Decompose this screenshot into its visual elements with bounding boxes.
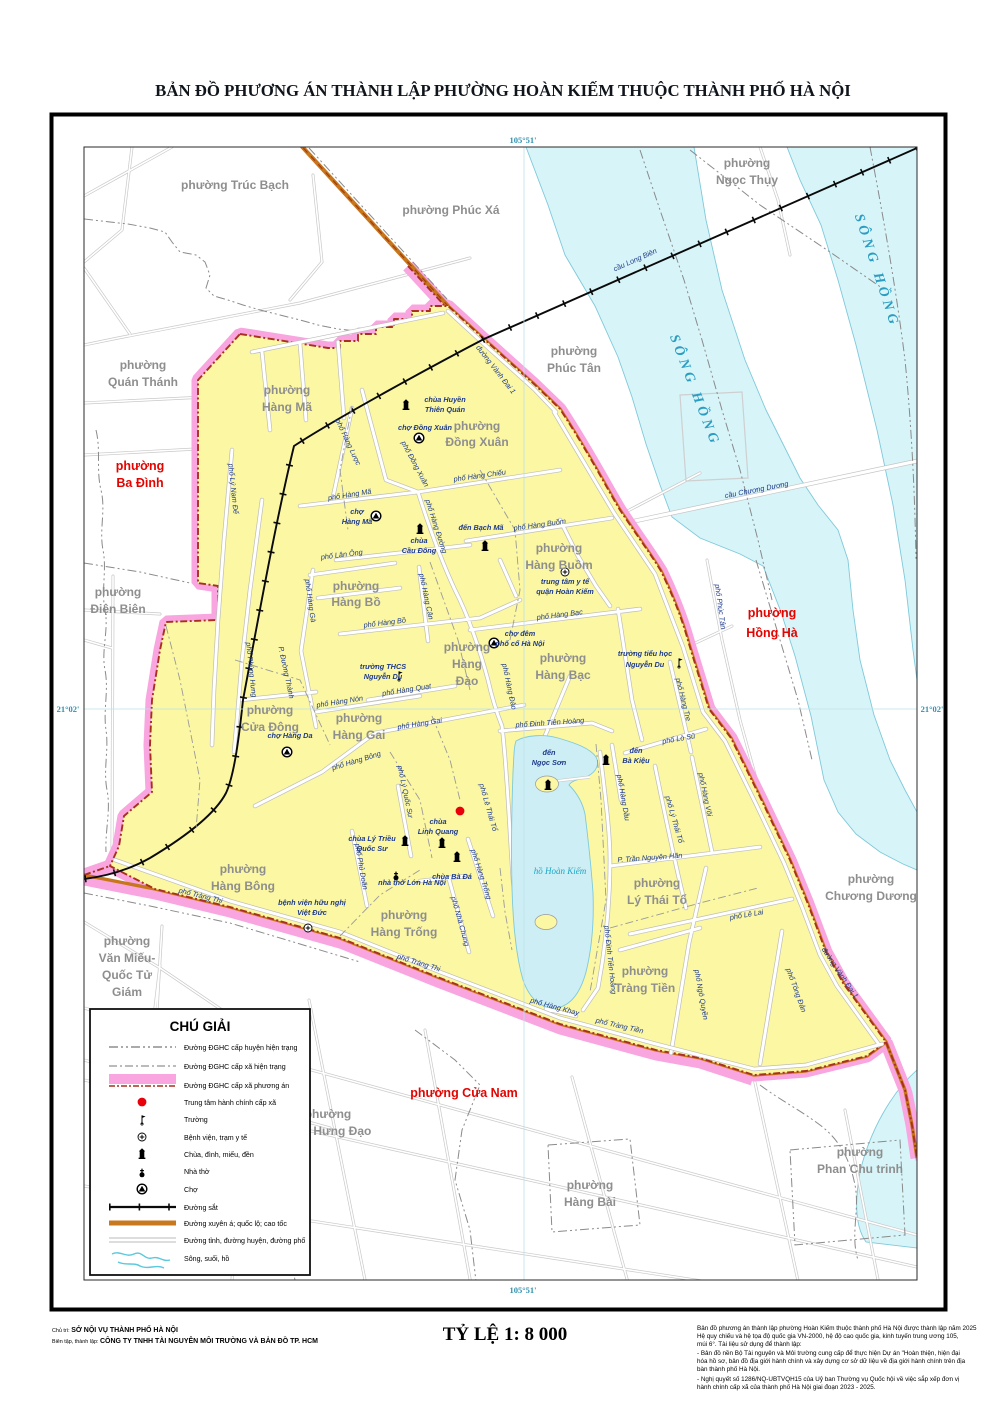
svg-text:Ba Đình: Ba Đình [116,476,163,490]
svg-text:trường THCS: trường THCS [360,662,406,671]
svg-text:chùa Lý Triều: chùa Lý Triều [348,834,396,843]
svg-text:phường: phường [551,344,598,358]
svg-text:phố cổ Hà Nội: phố cổ Hà Nội [494,639,545,648]
svg-text:phường: phường [622,964,669,978]
svg-text:phường: phường [536,541,583,555]
svg-text:đến Bạch Mã: đến Bạch Mã [458,523,503,532]
svg-text:Ngọc Sơn: Ngọc Sơn [532,758,567,767]
svg-text:Bản đồ phương án thành lập phư: Bản đồ phương án thành lập phường Hoàn K… [697,1323,977,1332]
svg-text:Hàng Bồ: Hàng Bồ [331,595,380,609]
svg-text:phường: phường [120,358,167,372]
svg-text:phường: phường [305,1107,352,1121]
svg-text:Hàng Buồm: Hàng Buồm [525,558,592,572]
svg-text:- Nghị quyết số 1286/NQ-UBTVQH: - Nghị quyết số 1286/NQ-UBTVQH15 của Uỷ … [697,1374,959,1383]
svg-text:105°51': 105°51' [509,135,536,145]
svg-text:hồ Hoàn Kiếm: hồ Hoàn Kiếm [534,866,587,876]
svg-text:Đồng Xuân: Đồng Xuân [445,435,508,449]
svg-text:Thiên Quán: Thiên Quán [425,405,466,414]
svg-text:Chùa, đình, miếu, đền: Chùa, đình, miếu, đền [184,1150,254,1159]
svg-text:Lý Thái Tổ: Lý Thái Tổ [627,893,687,907]
svg-text:Cầu Đông: Cầu Đông [402,546,437,555]
svg-text:hóa hồ sơ, bản đồ địa giới hàn: hóa hồ sơ, bản đồ địa giới hành chính và… [697,1356,966,1365]
svg-text:Hàng Bài: Hàng Bài [564,1195,616,1209]
svg-text:chùa: chùa [429,817,446,826]
svg-text:105°51': 105°51' [509,1285,536,1295]
svg-text:Chợ: Chợ [184,1186,198,1194]
svg-text:21°02': 21°02' [921,704,944,714]
svg-text:TỶ LỆ 1: 8 000: TỶ LỆ 1: 8 000 [443,1323,568,1345]
svg-text:Phan Chu trinh: Phan Chu trinh [817,1162,903,1176]
svg-text:Trường: Trường [184,1116,208,1124]
svg-text:Đường xuyên á; quốc lộ; cao tố: Đường xuyên á; quốc lộ; cao tốc [184,1219,287,1228]
svg-text:Điện Biên: Điện Biên [90,602,145,616]
svg-text:Sông, suối, hồ: Sông, suối, hồ [184,1254,229,1263]
svg-text:bệnh viện hữu nghị: bệnh viện hữu nghị [278,898,347,907]
svg-text:Quốc Sư: Quốc Sư [357,844,389,853]
svg-text:Hàng Trống: Hàng Trống [371,925,438,939]
svg-text:Hàng Bạc: Hàng Bạc [535,668,591,682]
svg-text:Giám: Giám [112,985,142,999]
svg-text:Việt Đức: Việt Đức [297,908,327,917]
svg-text:múi 6°. Tài liệu sử dụng để th: múi 6°. Tài liệu sử dụng để thành lập: [697,1340,802,1348]
svg-text:Đào: Đào [456,674,479,688]
svg-text:phường Cửa Nam: phường Cửa Nam [410,1086,518,1100]
svg-text:chùa: chùa [410,536,427,545]
svg-text:phường: phường [333,579,380,593]
svg-text:Ngọc Thụy: Ngọc Thụy [716,173,778,187]
svg-text:chợ: chợ [350,507,365,516]
svg-text:Chương Dương: Chương Dương [825,889,917,903]
svg-text:Hàng Bông: Hàng Bông [211,879,275,893]
svg-text:Trung tâm hành chính cấp xã: Trung tâm hành chính cấp xã [184,1098,276,1107]
svg-text:Đường tỉnh, đường huyện, đường: Đường tỉnh, đường huyện, đường phố [184,1236,305,1245]
svg-text:trường tiểu học: trường tiểu học [618,649,672,658]
svg-text:phường: phường [567,1178,614,1192]
svg-text:phường: phường [336,711,383,725]
svg-text:phường: phường [454,419,501,433]
svg-text:chùa Huyền: chùa Huyền [424,395,466,404]
svg-text:phường: phường [104,934,151,948]
svg-text:Văn Miếu-: Văn Miếu- [99,951,156,965]
svg-text:Quán Thánh: Quán Thánh [108,375,178,389]
svg-text:phường: phường [634,876,681,890]
svg-text:CHÚ GIẢI: CHÚ GIẢI [170,1019,231,1034]
svg-text:Đường ĐGHC cấp xã phương án: Đường ĐGHC cấp xã phương án [184,1081,289,1090]
svg-text:phường: phường [264,383,311,397]
svg-text:phường: phường [116,459,164,473]
svg-text:Nhà thờ: Nhà thờ [184,1168,210,1176]
svg-text:chợ đêm: chợ đêm [505,629,536,638]
svg-text:phường: phường [247,703,294,717]
svg-text:chùa Bà Đá: chùa Bà Đá [432,872,472,881]
svg-text:phường: phường [220,862,267,876]
svg-text:Hàng: Hàng [452,657,482,671]
svg-text:đến: đến [543,748,557,757]
svg-text:Đường sắt: Đường sắt [184,1203,218,1212]
svg-text:Quốc Tử: Quốc Tử [102,968,152,982]
svg-text:Bệnh viện, trạm y tế: Bệnh viện, trạm y tế [184,1133,247,1142]
svg-text:Nguyễn Du: Nguyễn Du [626,660,665,669]
svg-text:phường: phường [444,640,491,654]
svg-text:- Bản đồ nền Bộ Tài nguyên và: - Bản đồ nền Bộ Tài nguyên và Môi trường… [697,1348,960,1357]
svg-text:BẢN ĐỒ PHƯƠNG ÁN THÀNH LẬP PHƯ: BẢN ĐỒ PHƯƠNG ÁN THÀNH LẬP PHƯỜNG HOÀN K… [155,80,851,100]
svg-text:phường: phường [724,156,771,170]
svg-text:phường: phường [540,651,587,665]
svg-text:Hệ quy chiếu và hệ tọa độ quốc: Hệ quy chiếu và hệ tọa độ quốc gia VN-20… [697,1331,959,1340]
svg-text:Phúc Tân: Phúc Tân [547,361,601,375]
svg-text:phường: phường [748,606,796,620]
svg-text:Bà Kiệu: Bà Kiệu [622,756,650,765]
svg-text:Nguyễn Du: Nguyễn Du [364,672,403,681]
svg-text:Linh Quang: Linh Quang [418,827,459,836]
svg-text:Hàng Mã: Hàng Mã [342,517,372,526]
svg-text:phường Trúc Bạch: phường Trúc Bạch [181,178,289,192]
svg-text:Hồng Hà: Hồng Hà [746,626,797,640]
svg-text:Hàng Mã: Hàng Mã [262,400,312,414]
svg-text:Đường ĐGHC cấp huyện hiện trạn: Đường ĐGHC cấp huyện hiện trạng [184,1043,298,1052]
svg-text:hành chính cấp xã của thành ph: hành chính cấp xã của thành phố Hà Nội g… [697,1382,876,1391]
svg-text:phường: phường [837,1145,884,1159]
svg-text:chợ Hàng Da: chợ Hàng Da [267,731,312,740]
svg-text:quận Hoàn Kiếm: quận Hoàn Kiếm [536,587,594,596]
svg-text:bàn thành phố Hà Nội.: bàn thành phố Hà Nội. [697,1364,760,1373]
svg-text:phường Phúc Xá: phường Phúc Xá [402,203,500,217]
svg-text:đến: đến [630,746,644,755]
svg-text:Tràng Tiền: Tràng Tiền [615,981,675,995]
svg-text:phường: phường [381,908,428,922]
svg-text:Đường ĐGHC cấp xã hiện trạng: Đường ĐGHC cấp xã hiện trạng [184,1062,286,1071]
svg-text:Hàng Gai: Hàng Gai [333,728,386,742]
svg-text:phường: phường [848,872,895,886]
svg-text:21°02': 21°02' [57,704,80,714]
svg-text:chợ Đồng Xuân: chợ Đồng Xuân [398,423,452,432]
svg-text:phường: phường [95,585,142,599]
svg-text:trung tâm y tế: trung tâm y tế [541,577,590,586]
